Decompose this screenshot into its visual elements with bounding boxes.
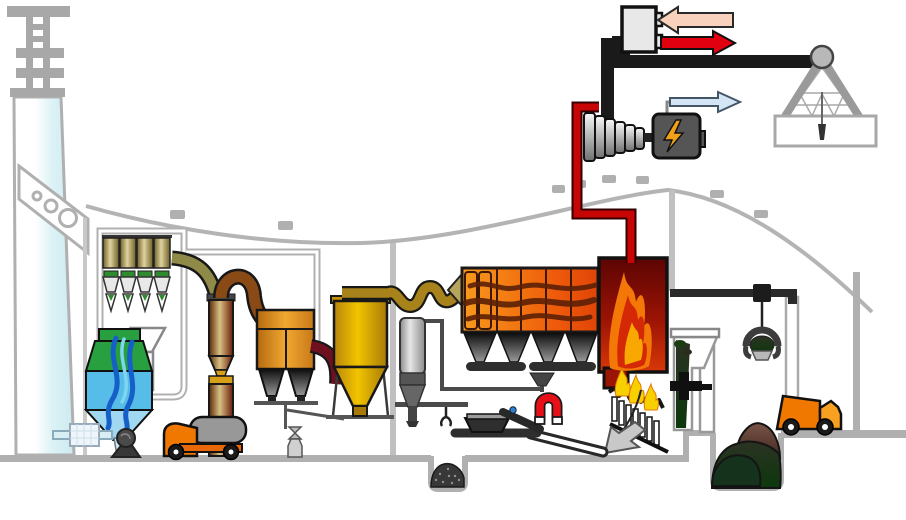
porthole-window-icon [60,210,77,227]
screw-conveyor-icon [529,362,596,371]
diagram-canvas [0,0,906,520]
absorber-stand [254,401,318,405]
hanging-fork-icon [441,407,451,426]
stack-ladder-icon [7,6,70,97]
pulley-icon [811,46,833,68]
crane-base-box [775,116,876,146]
screw-conveyor-icon [466,362,526,371]
absorber-hopper-icon [288,369,313,396]
interior-wall-bunker [669,190,675,291]
absorber-hopper-icon [259,369,284,396]
rotary-valve-icon [289,427,301,439]
district-heat-supply-arrow-icon [661,31,735,55]
filter-cells [103,238,170,311]
water-treatment-box [70,424,99,446]
water-pipe [98,431,112,439]
water-pipe [53,431,71,439]
crane-trolley [753,284,771,302]
porthole-window-icon [33,192,41,200]
esp-ash-funnel [530,373,554,386]
magnet-icon [535,398,562,424]
porthole-window-icon [45,200,57,212]
esp-hoppers [464,333,597,362]
tanker-truck [164,417,246,460]
district-heat-return-arrow-icon [658,7,733,33]
plant-diagram [0,0,906,520]
tanker-tank [190,417,246,443]
generator [653,114,705,158]
left-wall [83,218,87,455]
slag-handling [431,398,603,487]
dump-truck [777,396,841,435]
roof-vents [170,175,768,230]
heat-exchanger [622,7,662,52]
metal-piece-icon [510,407,516,413]
residue-flask [288,439,302,457]
slag-cart [465,418,509,432]
right-exterior-wall [853,272,860,430]
steam-turbine [584,113,658,161]
crane-rail [670,289,797,304]
interior-wall-center [390,243,396,455]
electricity-arrow-icon [670,92,740,112]
waste-bunker [712,284,781,488]
unloading-platform [781,430,906,438]
furnace [599,258,668,453]
cyclone-separator [311,296,394,419]
